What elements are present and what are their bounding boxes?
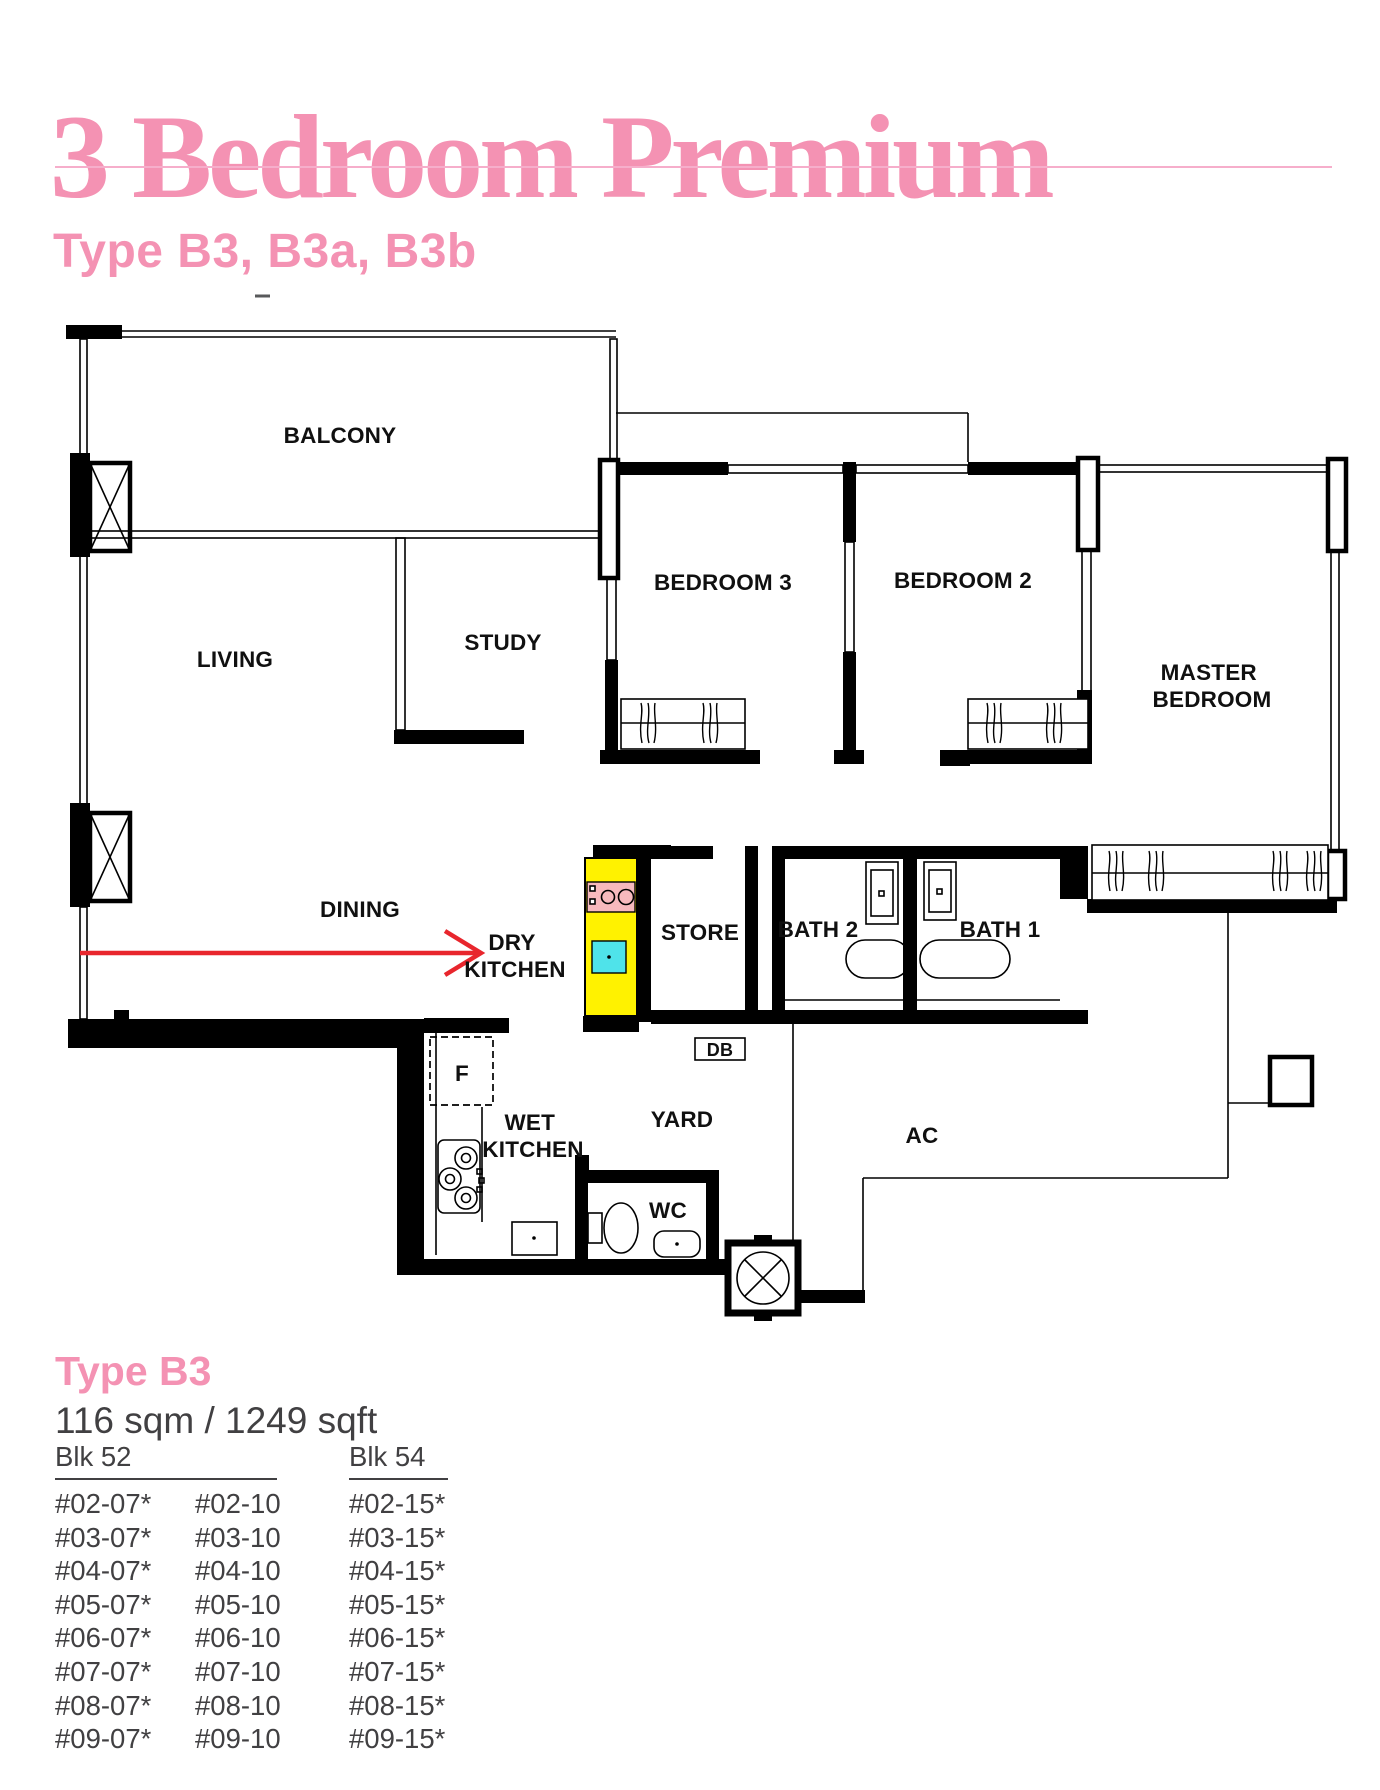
label-db: DB xyxy=(707,1040,733,1060)
unit-number: #08-15* xyxy=(349,1689,445,1723)
unit-list: #02-07*#03-07*#04-07*#05-07*#06-07*#07-0… xyxy=(55,1487,281,1756)
availability-block: Blk 54 #02-15*#03-15*#04-15*#05-15*#06-1… xyxy=(349,1441,448,1756)
unit-number: #09-15* xyxy=(349,1722,445,1756)
unit-number: #05-07* xyxy=(55,1588,195,1622)
bath1-vanity-icon xyxy=(924,862,956,920)
room-label-bedroom3: BEDROOM 3 xyxy=(654,570,792,595)
unit-number: #09-10 xyxy=(195,1722,281,1756)
title-divider xyxy=(55,166,1332,168)
unit-type-name: Type B3 xyxy=(55,1348,211,1395)
label-fridge: F xyxy=(455,1061,469,1086)
block-name: Blk 52 xyxy=(55,1441,277,1480)
room-label-study: STUDY xyxy=(464,630,541,655)
unit-number: #03-10 xyxy=(195,1521,281,1555)
column-marker xyxy=(70,803,130,907)
unit-number: #08-07* xyxy=(55,1689,195,1723)
unit-number: #05-10 xyxy=(195,1588,281,1622)
bath2-vanity-icon xyxy=(866,862,898,924)
unit-area: 116 sqm / 1249 sqft xyxy=(55,1400,377,1442)
sink-icon xyxy=(512,1222,557,1255)
unit-number: #04-15* xyxy=(349,1554,445,1588)
unit-number: #09-07* xyxy=(55,1722,195,1756)
bathtub-icon xyxy=(920,940,1010,978)
unit-list: #02-15*#03-15*#04-15*#05-15*#06-15*#07-1… xyxy=(349,1487,448,1756)
bathtub-icon xyxy=(846,940,910,978)
shaft-icon xyxy=(728,1235,798,1321)
walls xyxy=(66,325,1346,1303)
page-subtitle: Type B3, B3a, B3b xyxy=(53,224,477,279)
room-label-wc: WC xyxy=(649,1198,687,1223)
room-label-dining: DINING xyxy=(320,897,400,922)
unit-number: #03-07* xyxy=(55,1521,195,1555)
wardrobe-bedroom2 xyxy=(968,699,1088,749)
wc-sink-icon xyxy=(654,1231,700,1257)
unit-number: #02-10 xyxy=(195,1487,281,1521)
unit-number: #04-07* xyxy=(55,1554,195,1588)
unit-number: #08-10 xyxy=(195,1689,281,1723)
dry-kitchen-counter xyxy=(585,858,637,1016)
unit-number: #02-07* xyxy=(55,1487,195,1521)
unit-number: #05-15* xyxy=(349,1588,445,1622)
room-label-bedroom2: BEDROOM 2 xyxy=(894,568,1032,593)
availability-block: Blk 52 #02-07*#03-07*#04-07*#05-07*#06-0… xyxy=(55,1441,281,1756)
unit-number: #06-10 xyxy=(195,1621,281,1655)
column-marker xyxy=(70,453,130,557)
room-label-living: LIVING xyxy=(197,647,273,672)
direction-arrow xyxy=(80,931,481,975)
unit-number: #07-15* xyxy=(349,1655,445,1689)
room-label-wet-kitchen: WET KITCHEN xyxy=(482,1110,583,1162)
unit-number: #04-10 xyxy=(195,1554,281,1588)
toilet-icon xyxy=(588,1203,638,1253)
gas-hob-icon xyxy=(438,1140,484,1213)
room-label-ac: AC xyxy=(906,1123,939,1148)
sink-icon xyxy=(592,941,626,973)
block-name: Blk 54 xyxy=(349,1441,448,1480)
room-label-master-bedroom: MASTER BEDROOM xyxy=(1153,660,1272,712)
unit-number: #06-15* xyxy=(349,1621,445,1655)
unit-number: #07-10 xyxy=(195,1655,281,1689)
wardrobe-master xyxy=(1092,845,1328,900)
stove-icon xyxy=(587,882,635,912)
floor-plan: BALCONY LIVING STUDY BEDROOM 3 BEDROOM 2… xyxy=(0,285,1380,1360)
unit-number: #02-15* xyxy=(349,1487,445,1521)
unit-number: #03-15* xyxy=(349,1521,445,1555)
unit-number: #07-07* xyxy=(55,1655,195,1689)
unit-number: #06-07* xyxy=(55,1621,195,1655)
room-label-bath1: BATH 1 xyxy=(960,917,1041,942)
room-label-balcony: BALCONY xyxy=(284,423,397,448)
room-label-bath2: BATH 2 xyxy=(778,917,859,942)
page-title: 3 Bedroom Premium xyxy=(50,88,1051,226)
wardrobe-bedroom3 xyxy=(621,699,745,749)
room-label-store: STORE xyxy=(661,920,739,945)
room-label-yard: YARD xyxy=(651,1107,714,1132)
